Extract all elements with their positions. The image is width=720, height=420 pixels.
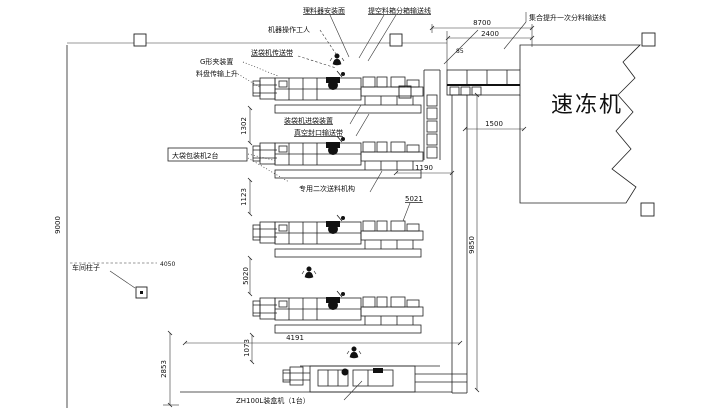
label-packer-box: 大袋包装机2台: [172, 151, 218, 160]
dim-infeed-width: 1500: [485, 120, 503, 128]
dim-small-offset: 85: [456, 48, 464, 55]
label-tray-lift: 料盘传输上升: [196, 69, 238, 78]
packing-machine-row-3: [253, 215, 423, 257]
cell-conveyor: [424, 70, 440, 160]
dim-bottom-left: 2853: [160, 360, 168, 378]
dim-door-offset: 4050: [160, 261, 175, 268]
dim-gap-4: 1073: [243, 339, 251, 357]
label-secondary-feed: 专用二次送料机构: [299, 184, 355, 193]
conveyor-lane: [452, 95, 467, 393]
dim-row3-offset: 1190: [415, 164, 433, 172]
freezer-infeed-belt: [447, 70, 520, 95]
dim-gap-3: 5020: [242, 267, 250, 285]
dim-gap-1: 1302: [240, 117, 248, 135]
callout-labels: 理料器安装面 提空料箱分箱输送线 机器操作工人 送袋机传送带 G形夹装置 料盘传…: [72, 6, 606, 405]
label-bag-infeed: 装袋机进袋装置: [284, 116, 333, 125]
worker-icon: [302, 267, 316, 278]
packing-machine-row-4: [253, 291, 423, 333]
label-top-2: 提空料箱分箱输送线: [368, 6, 431, 15]
dim-top-inner: 2400: [481, 30, 499, 38]
cad-drawing-canvas: 速冻机: [0, 0, 720, 420]
label-top-1: 理料器安装面: [303, 6, 345, 15]
dim-gap-2: 1123: [240, 188, 248, 206]
case-packer-machine: [283, 366, 467, 392]
dim-left-height: 9000: [54, 216, 62, 234]
label-bag-feeder: 送袋机传送带: [251, 48, 293, 57]
dimensions: 9000 8700 2400 85 1500 9850 1302 1123 11…: [54, 19, 532, 405]
column-square: [641, 203, 654, 216]
label-case-packer: ZH100L装盒机（1台）: [236, 396, 310, 405]
dim-row4-length: 4191: [286, 334, 304, 342]
column-square: [134, 34, 146, 46]
dim-lane-length: 9850: [468, 236, 476, 254]
dim-top-total: 8700: [473, 19, 491, 27]
packing-machine-row-2: [253, 136, 423, 178]
freezer-outline: 速冻机: [520, 45, 640, 203]
label-g-clamp: G形夹装置: [200, 57, 233, 66]
label-freezer-infeed: 集合提升一次分料输送线: [529, 13, 606, 22]
freezer-label: 速冻机: [551, 93, 623, 118]
column-square: [642, 33, 655, 46]
label-operator: 机器操作工人: [268, 25, 310, 34]
label-col-mark: 5021: [405, 195, 423, 203]
column-square: [390, 34, 402, 46]
worker-icon: [330, 54, 344, 65]
label-column-note: 车间柱子: [72, 263, 100, 272]
worker-icon: [347, 347, 361, 358]
label-vacuum-seal: 真空封口输送带: [294, 128, 343, 137]
column-mark: [140, 291, 143, 294]
factory-layout-drawing: 速冻机: [0, 0, 720, 420]
packing-machine-row-1: [253, 71, 423, 113]
